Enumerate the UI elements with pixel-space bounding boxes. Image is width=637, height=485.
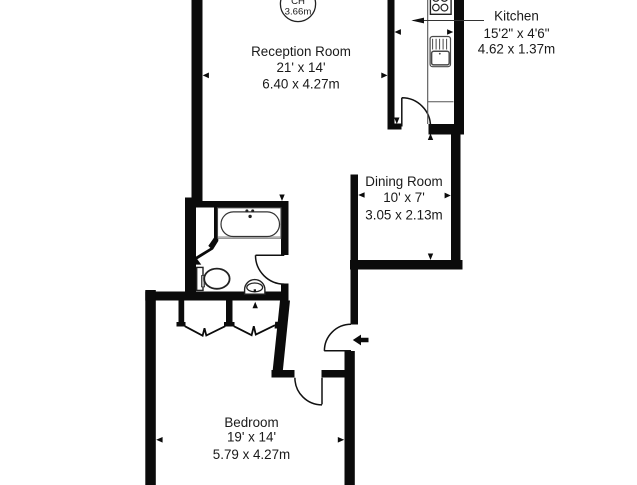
- svg-text:21' x 14': 21' x 14': [276, 60, 325, 75]
- svg-text:Dining Room: Dining Room: [365, 174, 442, 189]
- svg-text:3.66m: 3.66m: [285, 7, 312, 18]
- svg-text:5.79 x 4.27m: 5.79 x 4.27m: [213, 447, 290, 462]
- svg-text:15'2" x 4'6": 15'2" x 4'6": [484, 26, 550, 41]
- svg-text:6.40 x 4.27m: 6.40 x 4.27m: [262, 77, 339, 92]
- svg-text:Reception Room: Reception Room: [251, 44, 351, 59]
- svg-text:4.62 x 1.37m: 4.62 x 1.37m: [478, 42, 555, 57]
- svg-text:Kitchen: Kitchen: [494, 9, 539, 24]
- svg-text:3.05 x 2.13m: 3.05 x 2.13m: [365, 207, 442, 222]
- svg-text:10' x 7': 10' x 7': [383, 190, 425, 205]
- svg-text:Bedroom: Bedroom: [224, 415, 278, 430]
- svg-text:19' x 14': 19' x 14': [227, 430, 276, 445]
